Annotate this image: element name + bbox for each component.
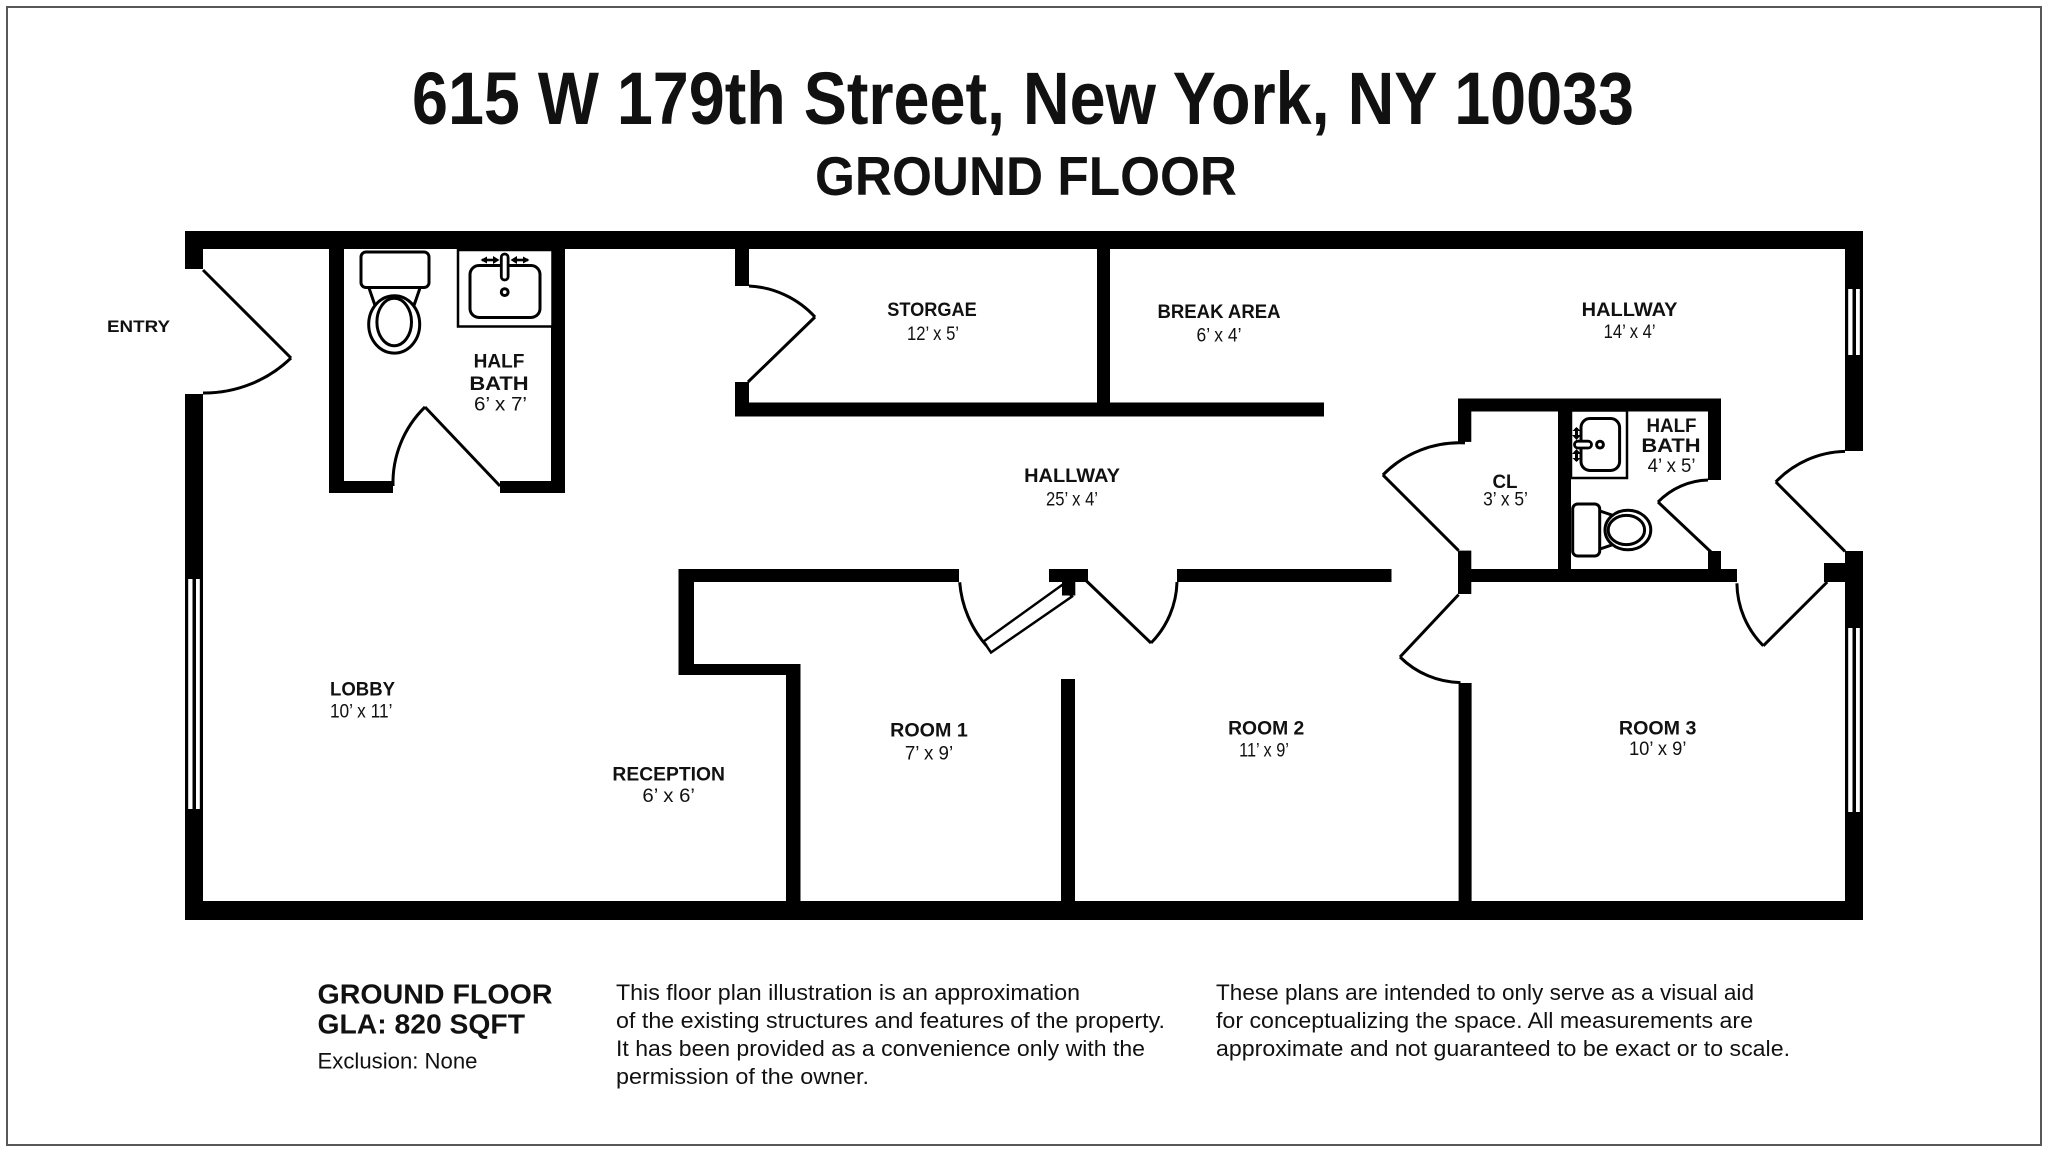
svg-text:ROOM 1: ROOM 1 bbox=[890, 721, 968, 742]
svg-text:ENTRY: ENTRY bbox=[107, 317, 171, 336]
svg-text:LOBBY: LOBBY bbox=[330, 680, 395, 701]
svg-text:10’ x 9’: 10’ x 9’ bbox=[1629, 739, 1687, 760]
svg-text:approximate and not guaranteed: approximate and not guaranteed to be exa… bbox=[1216, 1036, 1790, 1061]
svg-text:HALLWAY: HALLWAY bbox=[1582, 300, 1678, 321]
svg-text:permission of the owner.: permission of the owner. bbox=[616, 1064, 869, 1089]
svg-text:HALF: HALF bbox=[1647, 416, 1697, 437]
svg-text:6’ x 4’: 6’ x 4’ bbox=[1197, 326, 1242, 347]
svg-text:Exclusion: None: Exclusion: None bbox=[318, 1049, 478, 1074]
svg-text:GROUND FLOOR: GROUND FLOOR bbox=[318, 979, 553, 1010]
svg-text:for conceptualizing the space.: for conceptualizing the space. All measu… bbox=[1216, 1008, 1753, 1033]
svg-text:HALLWAY: HALLWAY bbox=[1024, 466, 1120, 487]
svg-text:615 W 179th Street, New York,: 615 W 179th Street, New York, NY 10033 bbox=[412, 57, 1634, 140]
svg-text:BATH: BATH bbox=[469, 374, 528, 395]
svg-text:25’ x 4’: 25’ x 4’ bbox=[1046, 490, 1098, 511]
svg-text:RECEPTION: RECEPTION bbox=[612, 765, 725, 786]
svg-text:10’ x 11’: 10’ x 11’ bbox=[330, 702, 393, 723]
svg-text:These plans are intended to on: These plans are intended to only serve a… bbox=[1216, 980, 1754, 1005]
svg-text:ROOM 2: ROOM 2 bbox=[1228, 719, 1304, 740]
svg-text:6’ x 7’: 6’ x 7’ bbox=[474, 395, 527, 416]
svg-text:ROOM 3: ROOM 3 bbox=[1619, 719, 1697, 740]
svg-text:BATH: BATH bbox=[1641, 436, 1700, 457]
svg-text:3’ x 5’: 3’ x 5’ bbox=[1483, 490, 1528, 511]
svg-text:HALF: HALF bbox=[474, 352, 525, 373]
svg-text:12’ x 5’: 12’ x 5’ bbox=[907, 324, 959, 345]
svg-text:6’ x 6’: 6’ x 6’ bbox=[642, 786, 695, 807]
svg-text:GROUND FLOOR: GROUND FLOOR bbox=[815, 145, 1237, 207]
svg-text:14’ x 4’: 14’ x 4’ bbox=[1604, 322, 1656, 343]
svg-text:This floor plan illustration i: This floor plan illustration is an appro… bbox=[616, 980, 1080, 1005]
svg-text:STORGAE: STORGAE bbox=[887, 300, 977, 321]
svg-text:4’ x 5’: 4’ x 5’ bbox=[1648, 456, 1696, 477]
svg-text:of the existing structures and: of the existing structures and features … bbox=[616, 1008, 1165, 1033]
svg-text:11’ x 9’: 11’ x 9’ bbox=[1239, 741, 1289, 762]
svg-text:GLA: 820 SQFT: GLA: 820 SQFT bbox=[318, 1009, 526, 1040]
svg-text:BREAK AREA: BREAK AREA bbox=[1158, 302, 1281, 323]
svg-text:It has been provided as a conv: It has been provided as a convenience on… bbox=[616, 1036, 1145, 1061]
svg-text:7’ x 9’: 7’ x 9’ bbox=[905, 744, 953, 765]
